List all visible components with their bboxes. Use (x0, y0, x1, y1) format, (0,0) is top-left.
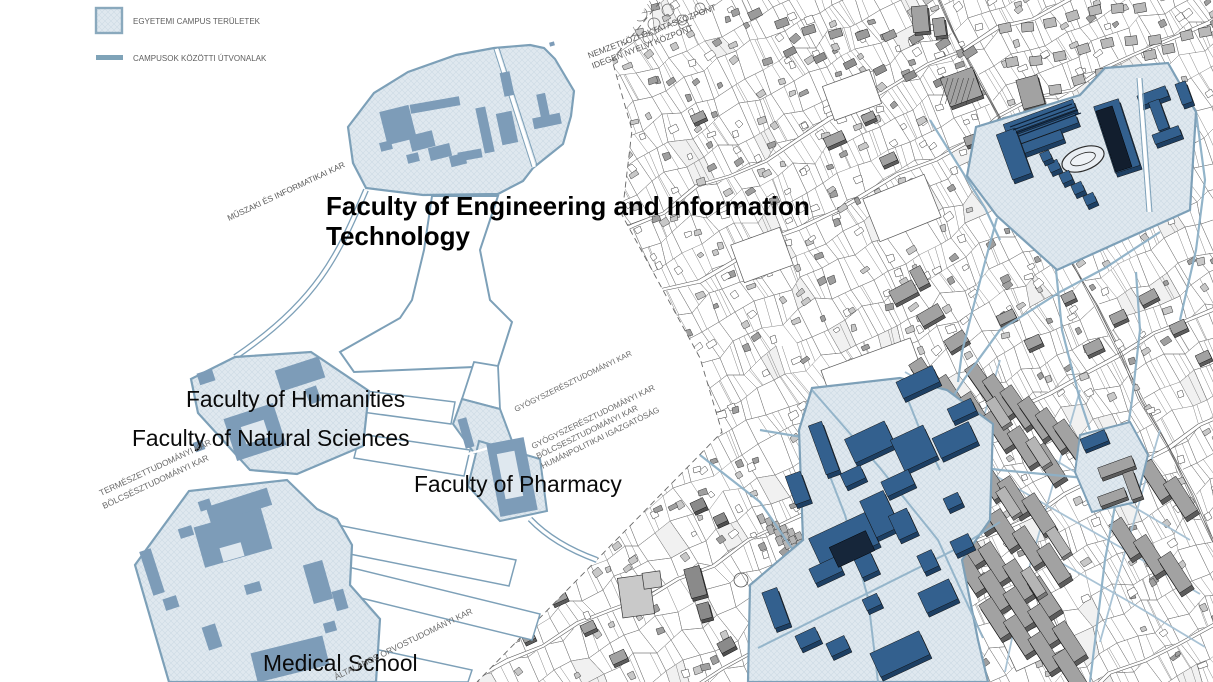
svg-text:Faculty of Pharmacy: Faculty of Pharmacy (414, 471, 622, 497)
svg-text:Technology: Technology (326, 221, 471, 251)
svg-text:EGYETEMI CAMPUS TERÜLETEK: EGYETEMI CAMPUS TERÜLETEK (133, 17, 261, 26)
svg-text:CAMPUSOK KÖZÖTTI ÚTVONALAK: CAMPUSOK KÖZÖTTI ÚTVONALAK (133, 54, 267, 63)
svg-text:Faculty of Natural Sciences: Faculty of Natural Sciences (132, 425, 409, 451)
svg-text:Faculty of Humanities: Faculty of Humanities (186, 386, 405, 412)
svg-text:Faculty of Engineering and Inf: Faculty of Engineering and Information (326, 191, 810, 221)
